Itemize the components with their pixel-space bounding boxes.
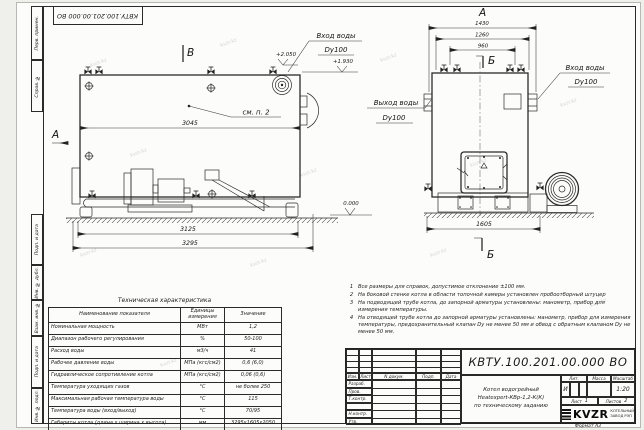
sign-row-label: Утв. [346,418,372,426]
spec-unit: °С [181,406,225,418]
company-logo: KVZR КОТЕЛЬНЫЙ ЗАВОД РЭП [561,405,635,423]
spec-header: Наименование показателя [49,308,181,323]
support-foot [286,203,298,217]
spec-name: Номинальная мощность [49,322,181,334]
spec-unit: МВт [181,322,225,334]
rev-line [346,355,461,356]
title-block: Изм. Лист N докум. Подп. Дата Разраб. Пр… [345,348,636,424]
flange-mark-icon [206,83,215,92]
sheets-value: 2 [624,398,627,404]
svg-text:1605: 1605 [476,221,492,228]
note-number: 2 [345,292,358,299]
sign-line [372,388,461,389]
flange-mark-icon [84,81,93,90]
note-number: 1 [345,284,358,291]
logo-bars-icon [562,409,571,420]
sign-row-label: Разраб. [346,380,372,388]
note-item: 4На отводящей трубе котла до запорной ар… [345,315,633,336]
note-text: На боковой стенке котла в области топочн… [358,292,633,299]
ground-hatch [424,213,594,218]
svg-text:960: 960 [478,44,489,50]
side-view: 3045 3125 3295 В А [51,32,372,252]
format-value: А3 [595,424,601,429]
spec-row: Габариты котла (длина х ширина х высота)… [49,418,282,430]
elevation-0000: 0.000 [330,201,372,215]
note-number: 3 [345,300,358,314]
duct-box [530,194,547,212]
valve-icon [424,184,431,191]
flue-outlet [300,93,319,128]
note-text: На отводящей трубе котла до запорной арм… [358,315,633,336]
section-mark-b-top: Б [476,55,495,68]
col-header-data: Дата [441,373,461,380]
ladder [205,170,270,211]
svg-text:А: А [51,129,59,141]
front-outlet-label: Выход воды Dy100 [367,99,431,123]
spec-row: Температура воды (вход/выход)°С70/95 [49,406,282,418]
svg-text:Вход воды: Вход воды [565,64,605,72]
drawing-sheet: kvzr.kz kvzr.kz kvzr.kz kvzr.kz kvzr.kz … [0,0,644,430]
spec-value: 0,6 (6,0) [225,358,282,370]
fan [546,173,579,213]
sign-line [372,395,461,396]
spec-row: Номинальная мощностьМВт1,2 [49,322,282,334]
spec-value: 3295х1605х2050 [225,418,282,430]
doc-number: КВТУ.100.201.00.000 ВО [461,349,635,375]
spec-name: Рабочее давление воды [49,358,181,370]
flange-mark-icon [84,151,93,160]
note-text: Все размеры для справок, допустимое откл… [358,284,633,291]
rev-line [346,361,461,362]
spec-unit: °С [181,382,225,394]
valve-icon [440,65,447,72]
note-text: На подводящей трубе котла, до запорной а… [358,300,633,314]
section-mark-b-bottom: Б [474,238,494,261]
spec-name: Гидравлическое сопротивление котла [49,370,181,382]
spec-name: Температура уходящих газов [49,382,181,394]
spec-unit: % [181,334,225,346]
elevation-2050: +2.050 [276,52,298,65]
spec-value: 0,06 (0,6) [225,370,282,382]
sign-row-label: Н.контр. [346,410,372,418]
spec-unit: МПа (кгс/см2) [181,358,225,370]
sheet-label: Лист [571,399,582,404]
sheet-value: 1 [585,398,588,404]
spec-row: Максимальная рабочая температура воды°С1… [49,394,282,406]
svg-text:+1.930: +1.930 [333,59,354,65]
ground-hatch [66,218,338,223]
svg-text:0.000: 0.000 [343,201,359,207]
spec-value: 41 [225,346,282,358]
spec-unit: м3/ч [181,346,225,358]
spec-name: Расход воды [49,346,181,358]
svg-text:Dy100: Dy100 [575,78,598,86]
spec-name: Температура воды (вход/выход) [49,406,181,418]
see-note-callout: см. п. 2 [188,105,281,117]
spec-value: 115 [225,394,282,406]
valve-icon [84,67,91,74]
spec-table-title: Техническая характеристика [48,297,281,304]
mass-label: Масса [587,375,611,382]
spec-name: Максимальная рабочая температура воды [49,394,181,406]
support-foot [80,207,92,217]
rev-line [346,367,461,368]
elevation-1930: +1.930 [302,59,358,72]
front-base [438,193,528,212]
valve-icon [269,67,276,74]
valve-icon [517,65,524,72]
sign-row-label: Т.контр. [346,395,372,403]
valve-icon [207,67,214,74]
svg-text:1260: 1260 [475,33,489,39]
dimension-3125: 3125 [78,221,298,238]
valve-icon [95,67,102,74]
sign-line [372,418,461,419]
svg-text:+2.050: +2.050 [276,52,297,58]
note-item: 2На боковой стенке котла в области топоч… [345,292,633,299]
inlet-flange-icon [273,76,292,95]
valve-icon [536,183,543,190]
mass-value [587,382,611,397]
svg-text:3125: 3125 [180,226,196,233]
valve-icon [506,65,513,72]
scale-label: Масштаб [611,375,635,382]
front-view: А 1430 1260 960 [367,7,610,261]
note-item: 3На подводящей трубе котла, до запорной … [345,300,633,314]
svg-text:см. п. 2: см. п. 2 [242,109,270,117]
spec-row: Гидравлическое сопротивление котлаМПа (к… [49,370,282,382]
sheets-cell: Листов 2 [598,397,635,405]
product-name-line: Heatexpert-КВр-1,2-К(К) [478,395,544,403]
spec-header: Единицы измерения [181,308,225,323]
scale-value: 1:20 [611,382,635,397]
col-header-ndoc: N докум. [372,373,416,380]
valve-icon [453,65,460,72]
spec-row: Рабочее давление водыМПа (кгс/см2)0,6 (6… [49,358,282,370]
front-view-label: А [478,7,486,19]
svg-text:1430: 1430 [475,21,489,27]
sign-row-label [346,403,372,411]
svg-text:3295: 3295 [182,240,198,247]
spec-header-row: Наименование показателя Единицы измерени… [49,308,282,323]
dimension-1605: 1605 [427,216,540,233]
section-mark-v: В [183,45,194,62]
col-header-list: Лист [359,373,372,380]
spec-name: Диапазон рабочего регулирования [49,334,181,346]
col-header-podp: Подп. [416,373,441,380]
dimension-3045: 3045 [80,120,300,128]
note-number: 4 [345,315,358,336]
sign-line [372,403,461,404]
lit-label: Лит. [561,375,587,382]
svg-text:В: В [187,47,194,59]
spec-row: Расход водым3/ч41 [49,346,282,358]
product-name-line: по техническому заданию [474,403,548,411]
spec-unit: °С [181,394,225,406]
pump-motor-unit [124,169,192,212]
spec-unit: мм [181,418,225,430]
svg-text:3045: 3045 [182,120,198,127]
spec-name: Габариты котла (длина х ширина х высота) [49,418,181,430]
lit-cell [570,382,579,397]
company-name: КОТЕЛЬНЫЙ ЗАВОД РЭП [610,409,634,418]
sign-row-label: Пров. [346,388,372,396]
svg-text:Вход воды: Вход воды [316,32,356,40]
spec-value: 50-100 [225,334,282,346]
spec-unit: МПа (кгс/см2) [181,370,225,382]
side-inlet-label: Вход воды Dy100 [288,32,362,72]
lit-cell [579,382,588,397]
format-label: Формат [575,424,594,429]
note-item: 1Все размеры для справок, допустимое отк… [345,284,633,291]
svg-text:Выход воды: Выход воды [374,99,419,107]
col-header-izm: Изм. [346,373,359,380]
sheet-cell: Лист 1 [561,397,598,405]
logo-text: KVZR [573,408,608,421]
svg-text:Б: Б [488,55,495,67]
sign-line [372,410,461,411]
furnace-door [457,152,507,193]
spec-row: Температура уходящих газов°Сне более 250 [49,382,282,394]
sight-box [504,94,521,109]
product-name-line: Котел водогрейный [483,387,539,395]
spec-table: Техническая характеристика Наименование … [48,297,281,430]
svg-text:Dy100: Dy100 [383,114,406,122]
spec-value: 70/95 [225,406,282,418]
spec-row: Диапазон рабочего регулирования%50-100 [49,334,282,346]
svg-text:Б: Б [487,249,494,261]
outlet-flange [424,94,432,111]
company-name-line: ЗАВОД РЭП [610,414,634,419]
sheets-label: Листов [606,399,622,404]
view-mark-a: А [51,129,68,143]
lit-value: И [561,382,570,397]
lower-pipe [84,191,296,207]
format-note: Формат А3 [540,424,636,429]
spec-value: не более 250 [225,382,282,394]
product-name: Котел водогрейный Heatexpert-КВр-1,2-К(К… [461,375,561,423]
front-inlet-label: Вход воды Dy100 [538,64,610,99]
spec-value: 1,2 [225,322,282,334]
svg-text:Dy100: Dy100 [325,46,348,54]
notes-block: 1Все размеры для справок, допустимое отк… [345,284,633,337]
inlet-flange [528,94,537,111]
spec-header: Значение [225,308,282,323]
